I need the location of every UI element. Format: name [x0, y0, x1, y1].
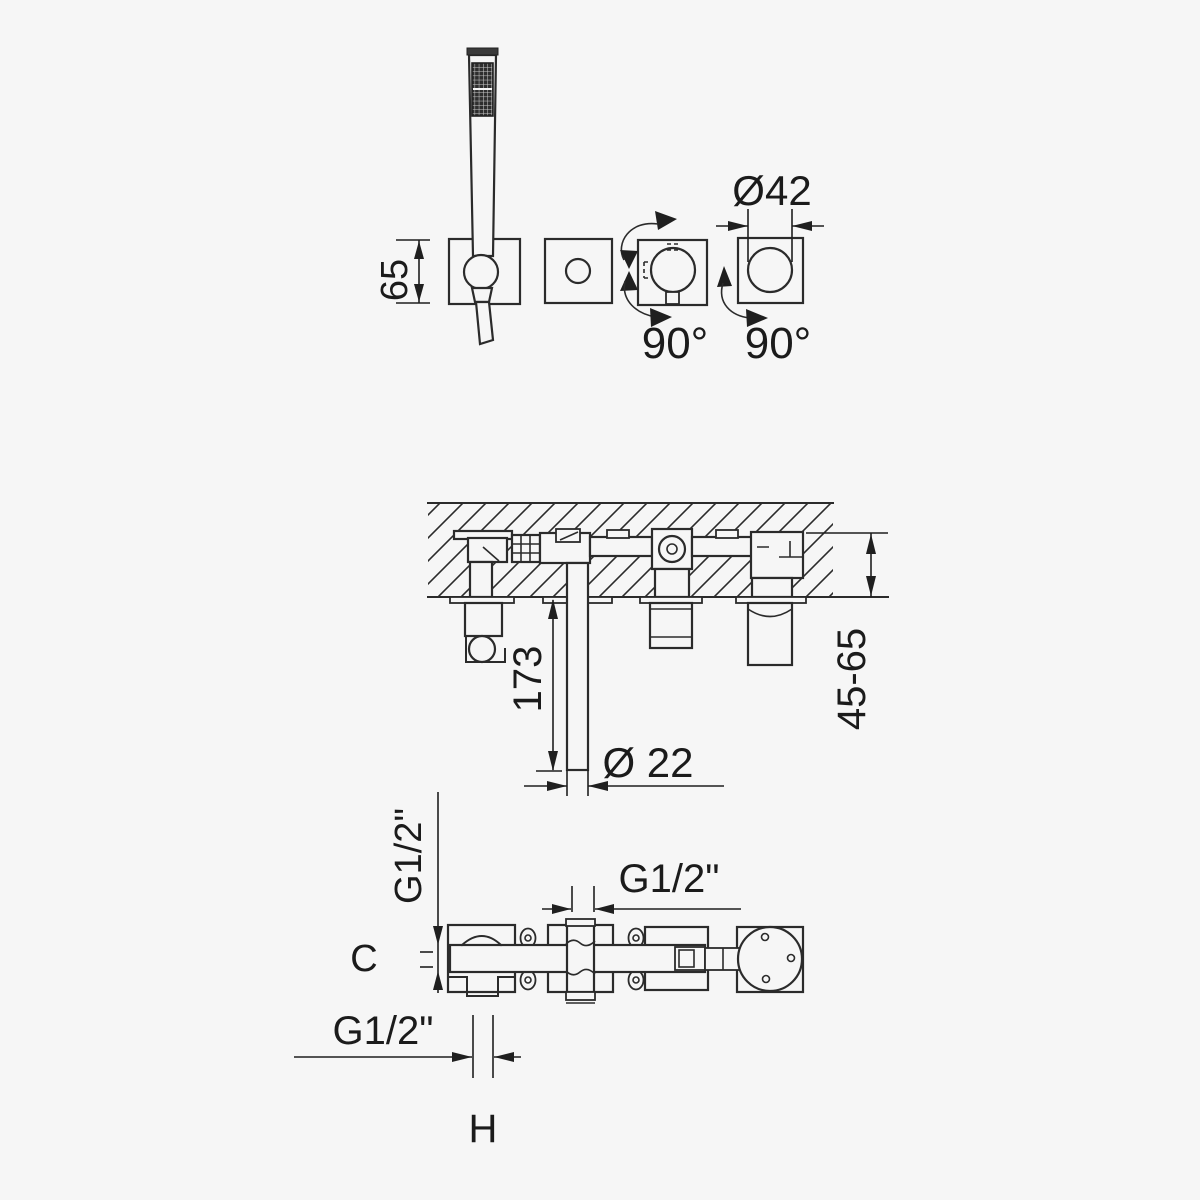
- dim-c-label: C: [350, 938, 377, 980]
- front-view: 65 90° Ø42: [374, 48, 824, 368]
- holder-cylinder: [465, 603, 502, 636]
- arrow-right: [452, 1052, 472, 1062]
- cartridge-tab-top: [566, 919, 595, 926]
- spout-flange: [738, 927, 802, 991]
- spout-tube: [567, 563, 588, 770]
- handshower: [467, 48, 498, 256]
- arc-pinch-lower: [620, 271, 638, 291]
- dim-65: 65: [374, 240, 430, 303]
- valve-handle-right: [748, 248, 792, 292]
- dim-g12-left-label: G1/2": [388, 808, 430, 904]
- holder-knob: [464, 255, 498, 289]
- arrow-up: [866, 534, 876, 554]
- dim-173-label: 173: [506, 646, 550, 713]
- arc-arrowhead-up: [717, 266, 732, 287]
- section-view: 173 Ø 22 45-65: [428, 503, 888, 796]
- spout-clip: [556, 529, 580, 542]
- thread-block: [512, 535, 540, 562]
- cartridge-tab-bottom: [566, 992, 595, 1000]
- rotation-right-label: 90°: [745, 319, 812, 368]
- technical-drawing-page: 65 90° Ø42: [0, 0, 1200, 1200]
- arrow-right: [547, 781, 567, 791]
- dim-g12-left: G1/2" C: [350, 792, 443, 993]
- dim-42-label: Ø42: [732, 167, 811, 214]
- arrow-left: [494, 1052, 514, 1062]
- valve1-stem: [655, 569, 689, 597]
- diverter-button: [566, 259, 590, 283]
- fixing-tab-2: [716, 530, 738, 538]
- dim-g12-center: G1/2": [542, 857, 741, 914]
- arrow-down: [433, 926, 443, 945]
- dim-g12-bottom: G1/2" H: [294, 1009, 521, 1151]
- arrow-up: [433, 971, 443, 990]
- right-elbow: [751, 532, 803, 578]
- rotation-left-label: 90°: [642, 319, 709, 368]
- connector-left: [590, 537, 652, 556]
- handshower-neck: [472, 288, 492, 302]
- dim-h-label: H: [469, 1107, 498, 1151]
- bath-mixer-technical-drawing: 65 90° Ø42: [0, 0, 1200, 1200]
- arrow-down: [866, 576, 876, 596]
- dim-65-label: 65: [374, 259, 416, 301]
- arrow-right: [728, 221, 748, 231]
- arrow-right: [552, 904, 571, 914]
- arc-arrowhead-top: [655, 211, 677, 230]
- arc-pinch-upper: [620, 250, 638, 269]
- cartridge-column: [566, 919, 595, 1003]
- left-stem: [470, 562, 492, 597]
- plan-view: G1/2" C G1/2" G1/2" H: [294, 792, 803, 1151]
- valve-lever-tab: [666, 292, 679, 304]
- holder-hook-ring: [469, 636, 495, 662]
- arrow-left: [792, 221, 812, 231]
- dim-22-label: Ø 22: [602, 739, 693, 786]
- connector-right: [692, 537, 752, 556]
- dim-45-65-label: 45-65: [830, 628, 874, 730]
- dim-g12-bottom-label: G1/2": [333, 1009, 434, 1053]
- arrow-left: [595, 904, 614, 914]
- threaded-nipple: [705, 948, 741, 970]
- arrow-up: [414, 241, 424, 259]
- handshower-cap: [467, 48, 498, 55]
- fixing-tab-1: [607, 530, 629, 538]
- dim-173: 173: [506, 599, 562, 771]
- handshower-handle-end: [476, 302, 493, 344]
- arrow-down: [548, 751, 558, 771]
- right-stem: [752, 578, 792, 597]
- dim-g12-center-label: G1/2": [619, 857, 720, 901]
- dim-22: Ø 22: [524, 739, 724, 796]
- coupling-box: [675, 947, 705, 970]
- cartridge-circle: [659, 536, 685, 562]
- valve-handle-left: [651, 248, 695, 292]
